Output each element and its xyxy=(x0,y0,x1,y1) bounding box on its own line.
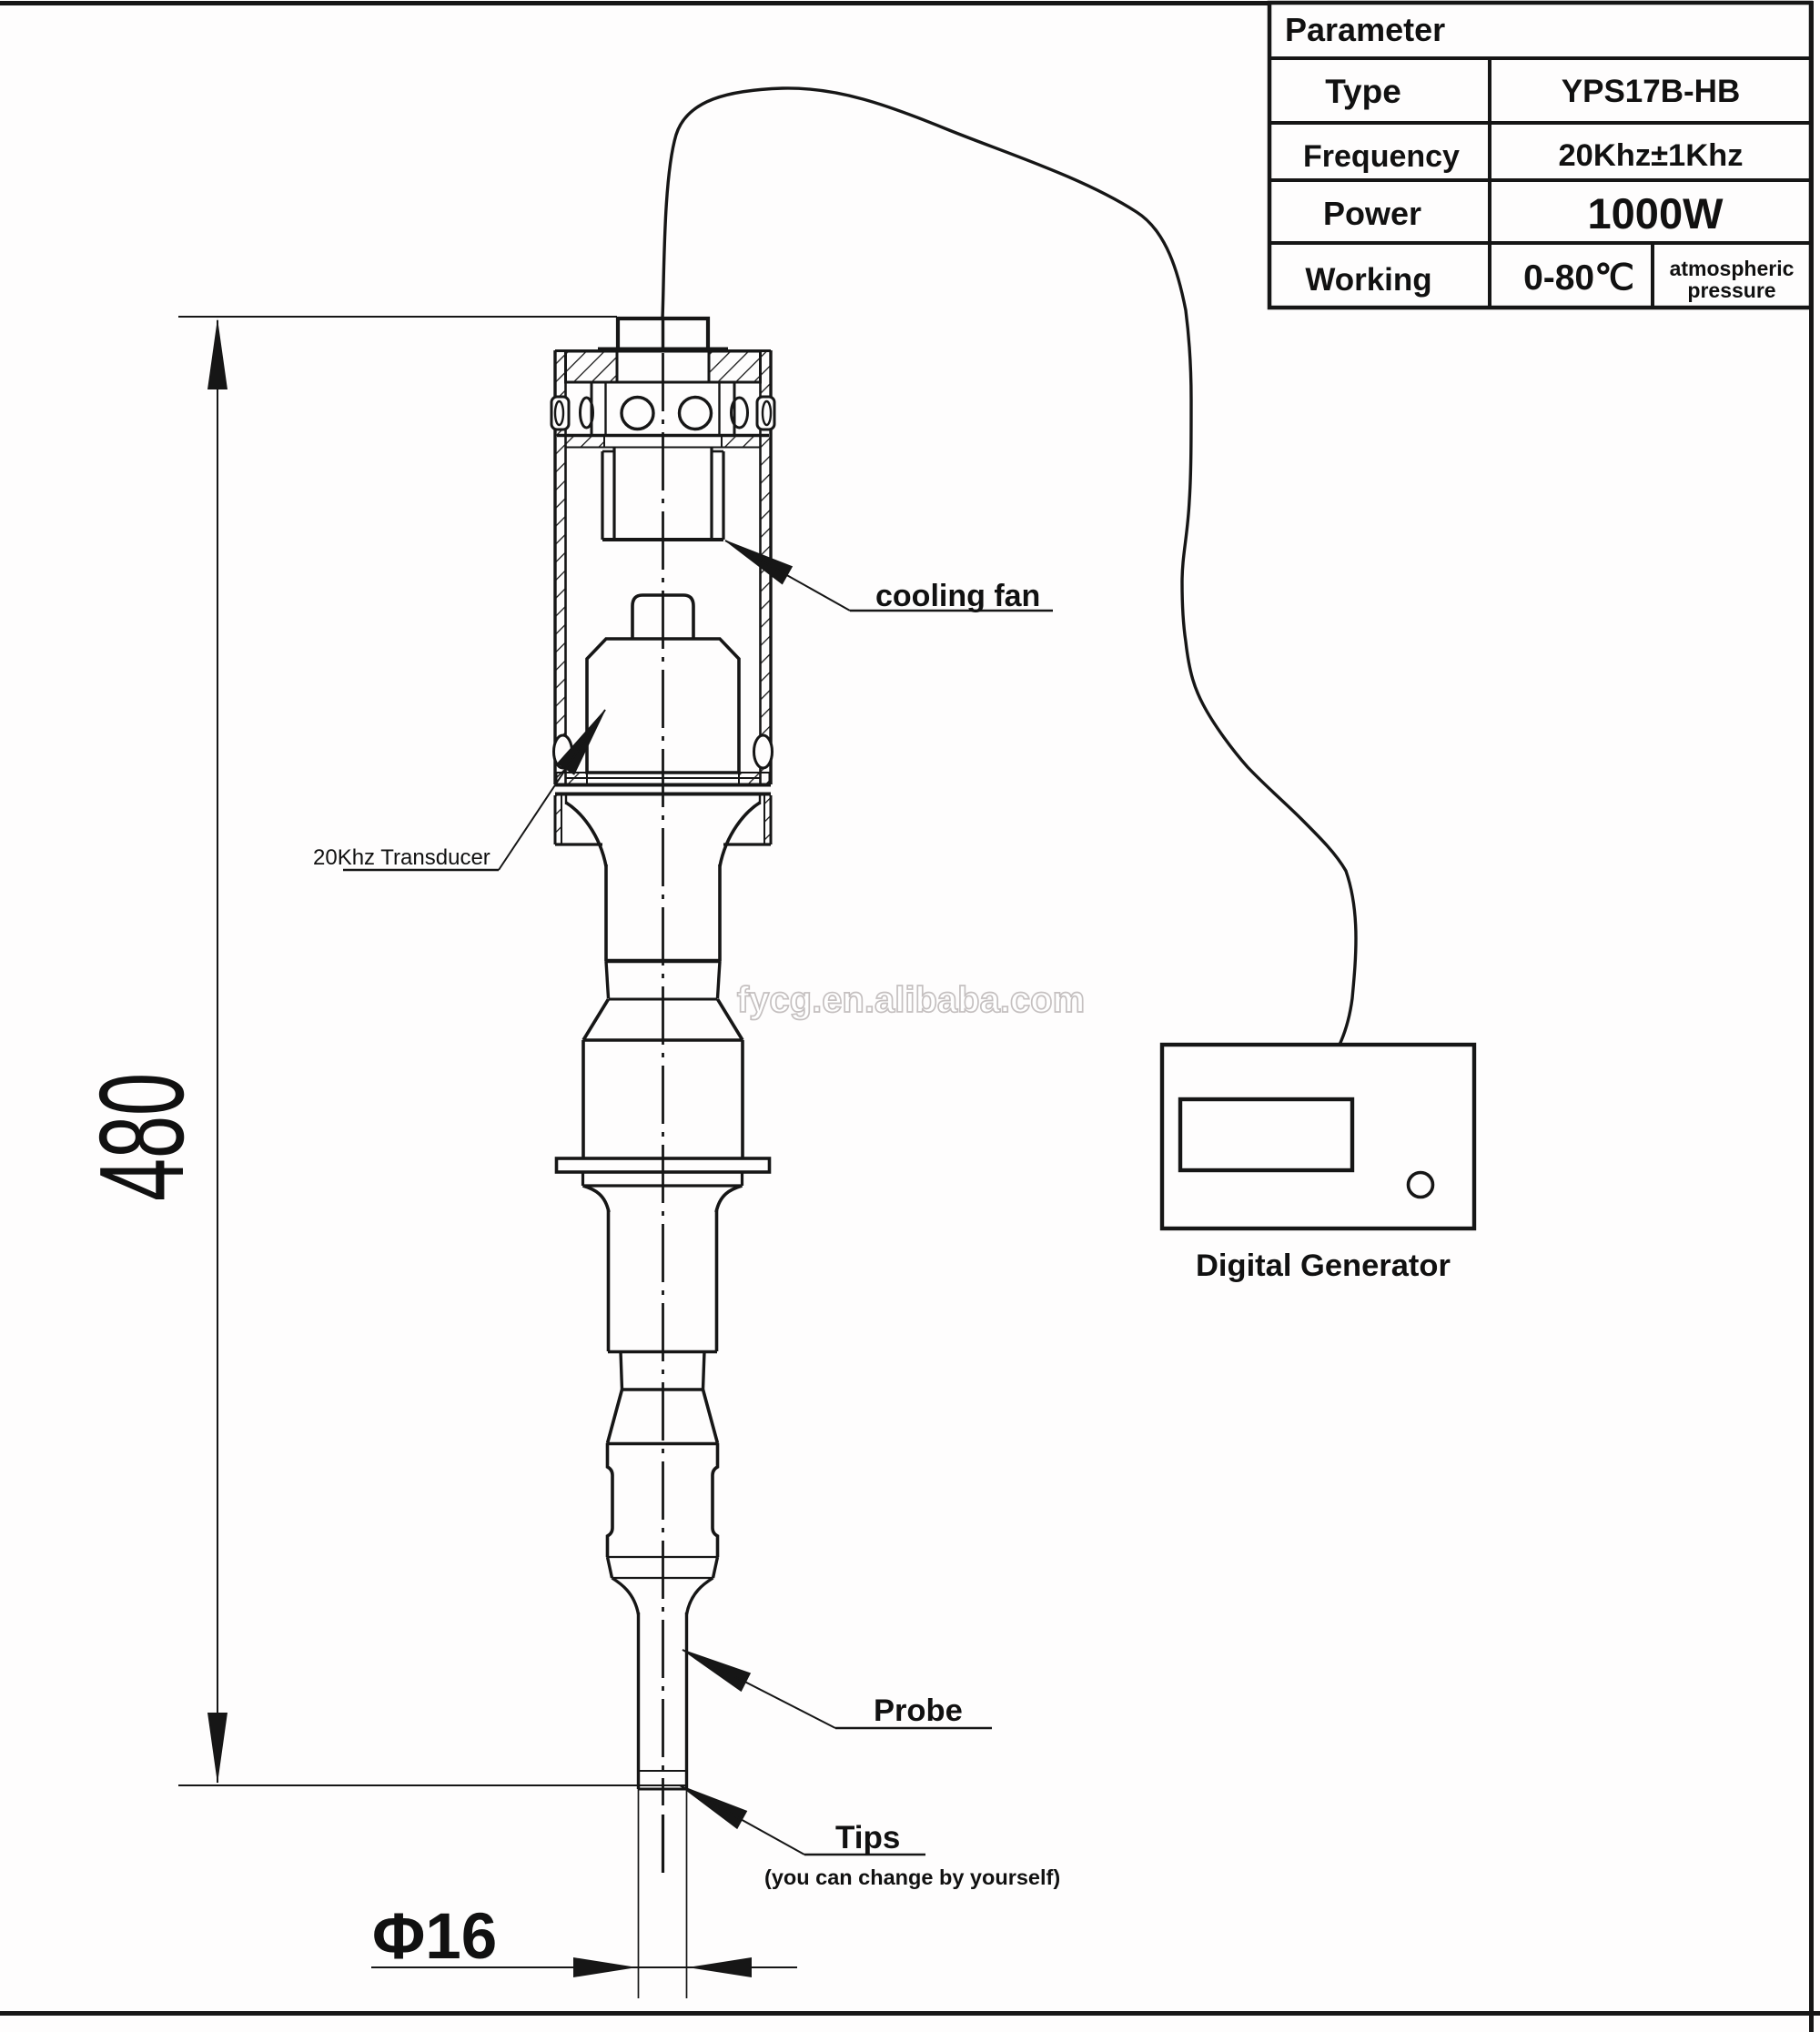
svg-text:0-80℃: 0-80℃ xyxy=(1523,258,1634,298)
svg-text:Parameter: Parameter xyxy=(1285,11,1445,48)
svg-text:20Khz±1Khz: 20Khz±1Khz xyxy=(1559,138,1744,173)
svg-text:pressure: pressure xyxy=(1687,278,1775,302)
svg-text:1000W: 1000W xyxy=(1588,189,1724,238)
svg-text:(you can change by yourself): (you can change by yourself) xyxy=(764,1865,1060,1889)
svg-text:20Khz Transducer: 20Khz Transducer xyxy=(313,845,490,870)
svg-text:atmospheric: atmospheric xyxy=(1670,257,1795,280)
svg-text:480: 480 xyxy=(75,1073,208,1201)
svg-text:YPS17B-HB: YPS17B-HB xyxy=(1562,74,1740,109)
svg-text:Working: Working xyxy=(1305,262,1431,298)
svg-text:Power: Power xyxy=(1323,195,1421,232)
svg-text:Digital Generator: Digital Generator xyxy=(1196,1249,1451,1283)
svg-text:Φ16: Φ16 xyxy=(372,1901,497,1973)
svg-text:Probe: Probe xyxy=(874,1693,963,1728)
svg-text:Frequency: Frequency xyxy=(1303,139,1460,174)
svg-text:Type: Type xyxy=(1325,73,1401,110)
svg-text:fycg.en.alibaba.com: fycg.en.alibaba.com xyxy=(737,980,1085,1020)
svg-text:cooling fan: cooling fan xyxy=(875,579,1040,613)
svg-text:Tips: Tips xyxy=(835,1820,900,1855)
